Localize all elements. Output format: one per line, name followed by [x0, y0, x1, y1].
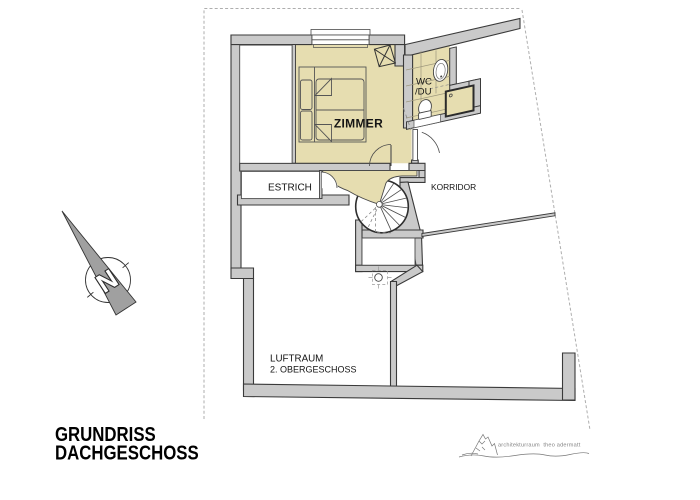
- svg-text:LUFTRAUM: LUFTRAUM: [270, 354, 323, 365]
- svg-text:DACHGESCHOSS: DACHGESCHOSS: [55, 441, 199, 464]
- svg-text:KORRIDOR: KORRIDOR: [431, 182, 476, 192]
- svg-text:/DU: /DU: [415, 86, 432, 97]
- svg-text:architekturraum theo adermatt: architekturraum theo adermatt: [498, 443, 581, 449]
- svg-text:2. OBERGESCHOSS: 2. OBERGESCHOSS: [270, 365, 357, 375]
- svg-text:ESTRICH: ESTRICH: [268, 183, 312, 194]
- svg-text:ZIMMER: ZIMMER: [334, 117, 383, 131]
